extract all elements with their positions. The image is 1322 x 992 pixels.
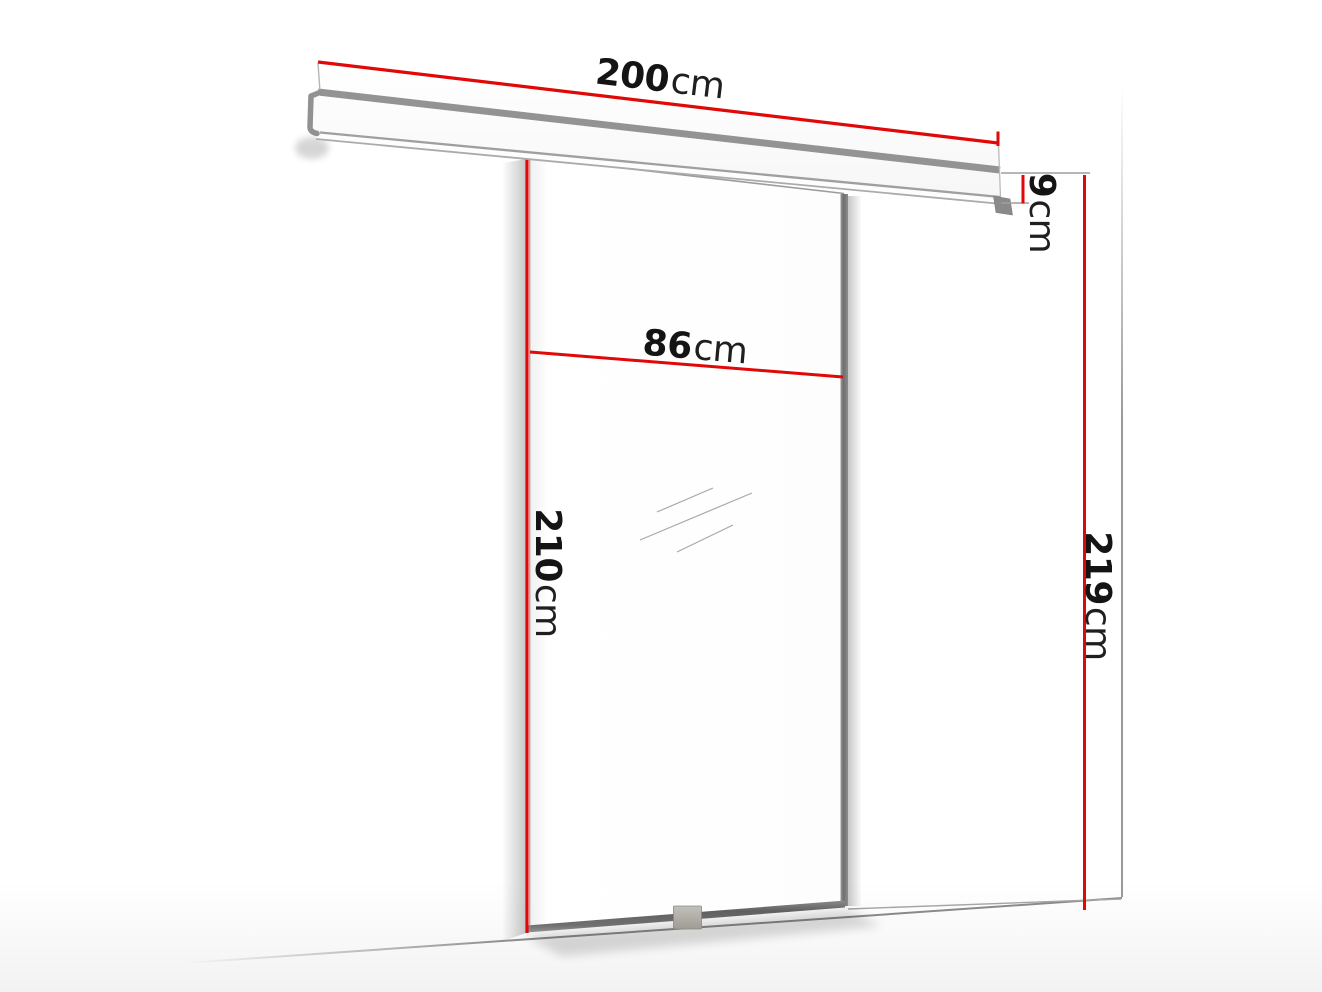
door-right-shadow — [848, 196, 861, 906]
sliding-door-diagram — [0, 0, 1322, 992]
track-height-value: 9 — [1021, 173, 1062, 198]
door-right-edge — [841, 194, 849, 906]
label-total-height: 219cm — [1079, 531, 1115, 661]
total-height-unit: cm — [1077, 607, 1118, 661]
door-height-value: 210 — [527, 508, 568, 582]
diagram-stage: 200cm 86cm 210cm 9cm 219cm — [0, 0, 1322, 992]
door-left-wall-shadow — [503, 159, 526, 941]
track-width-unit: cm — [668, 60, 726, 107]
track-height-unit: cm — [1021, 199, 1062, 253]
track-width-value: 200 — [593, 51, 671, 100]
door-face — [529, 158, 843, 931]
door-width-value: 86 — [641, 323, 693, 368]
door-height-unit: cm — [527, 584, 568, 638]
total-height-value: 219 — [1077, 531, 1118, 605]
label-door-width: 86cm — [641, 325, 749, 370]
door-width-unit: cm — [692, 327, 749, 373]
label-track-height: 9cm — [1023, 173, 1059, 253]
rail-right-end-lip — [994, 196, 1013, 215]
floor-guide-handle — [674, 906, 702, 929]
label-door-height: 210cm — [529, 508, 565, 638]
